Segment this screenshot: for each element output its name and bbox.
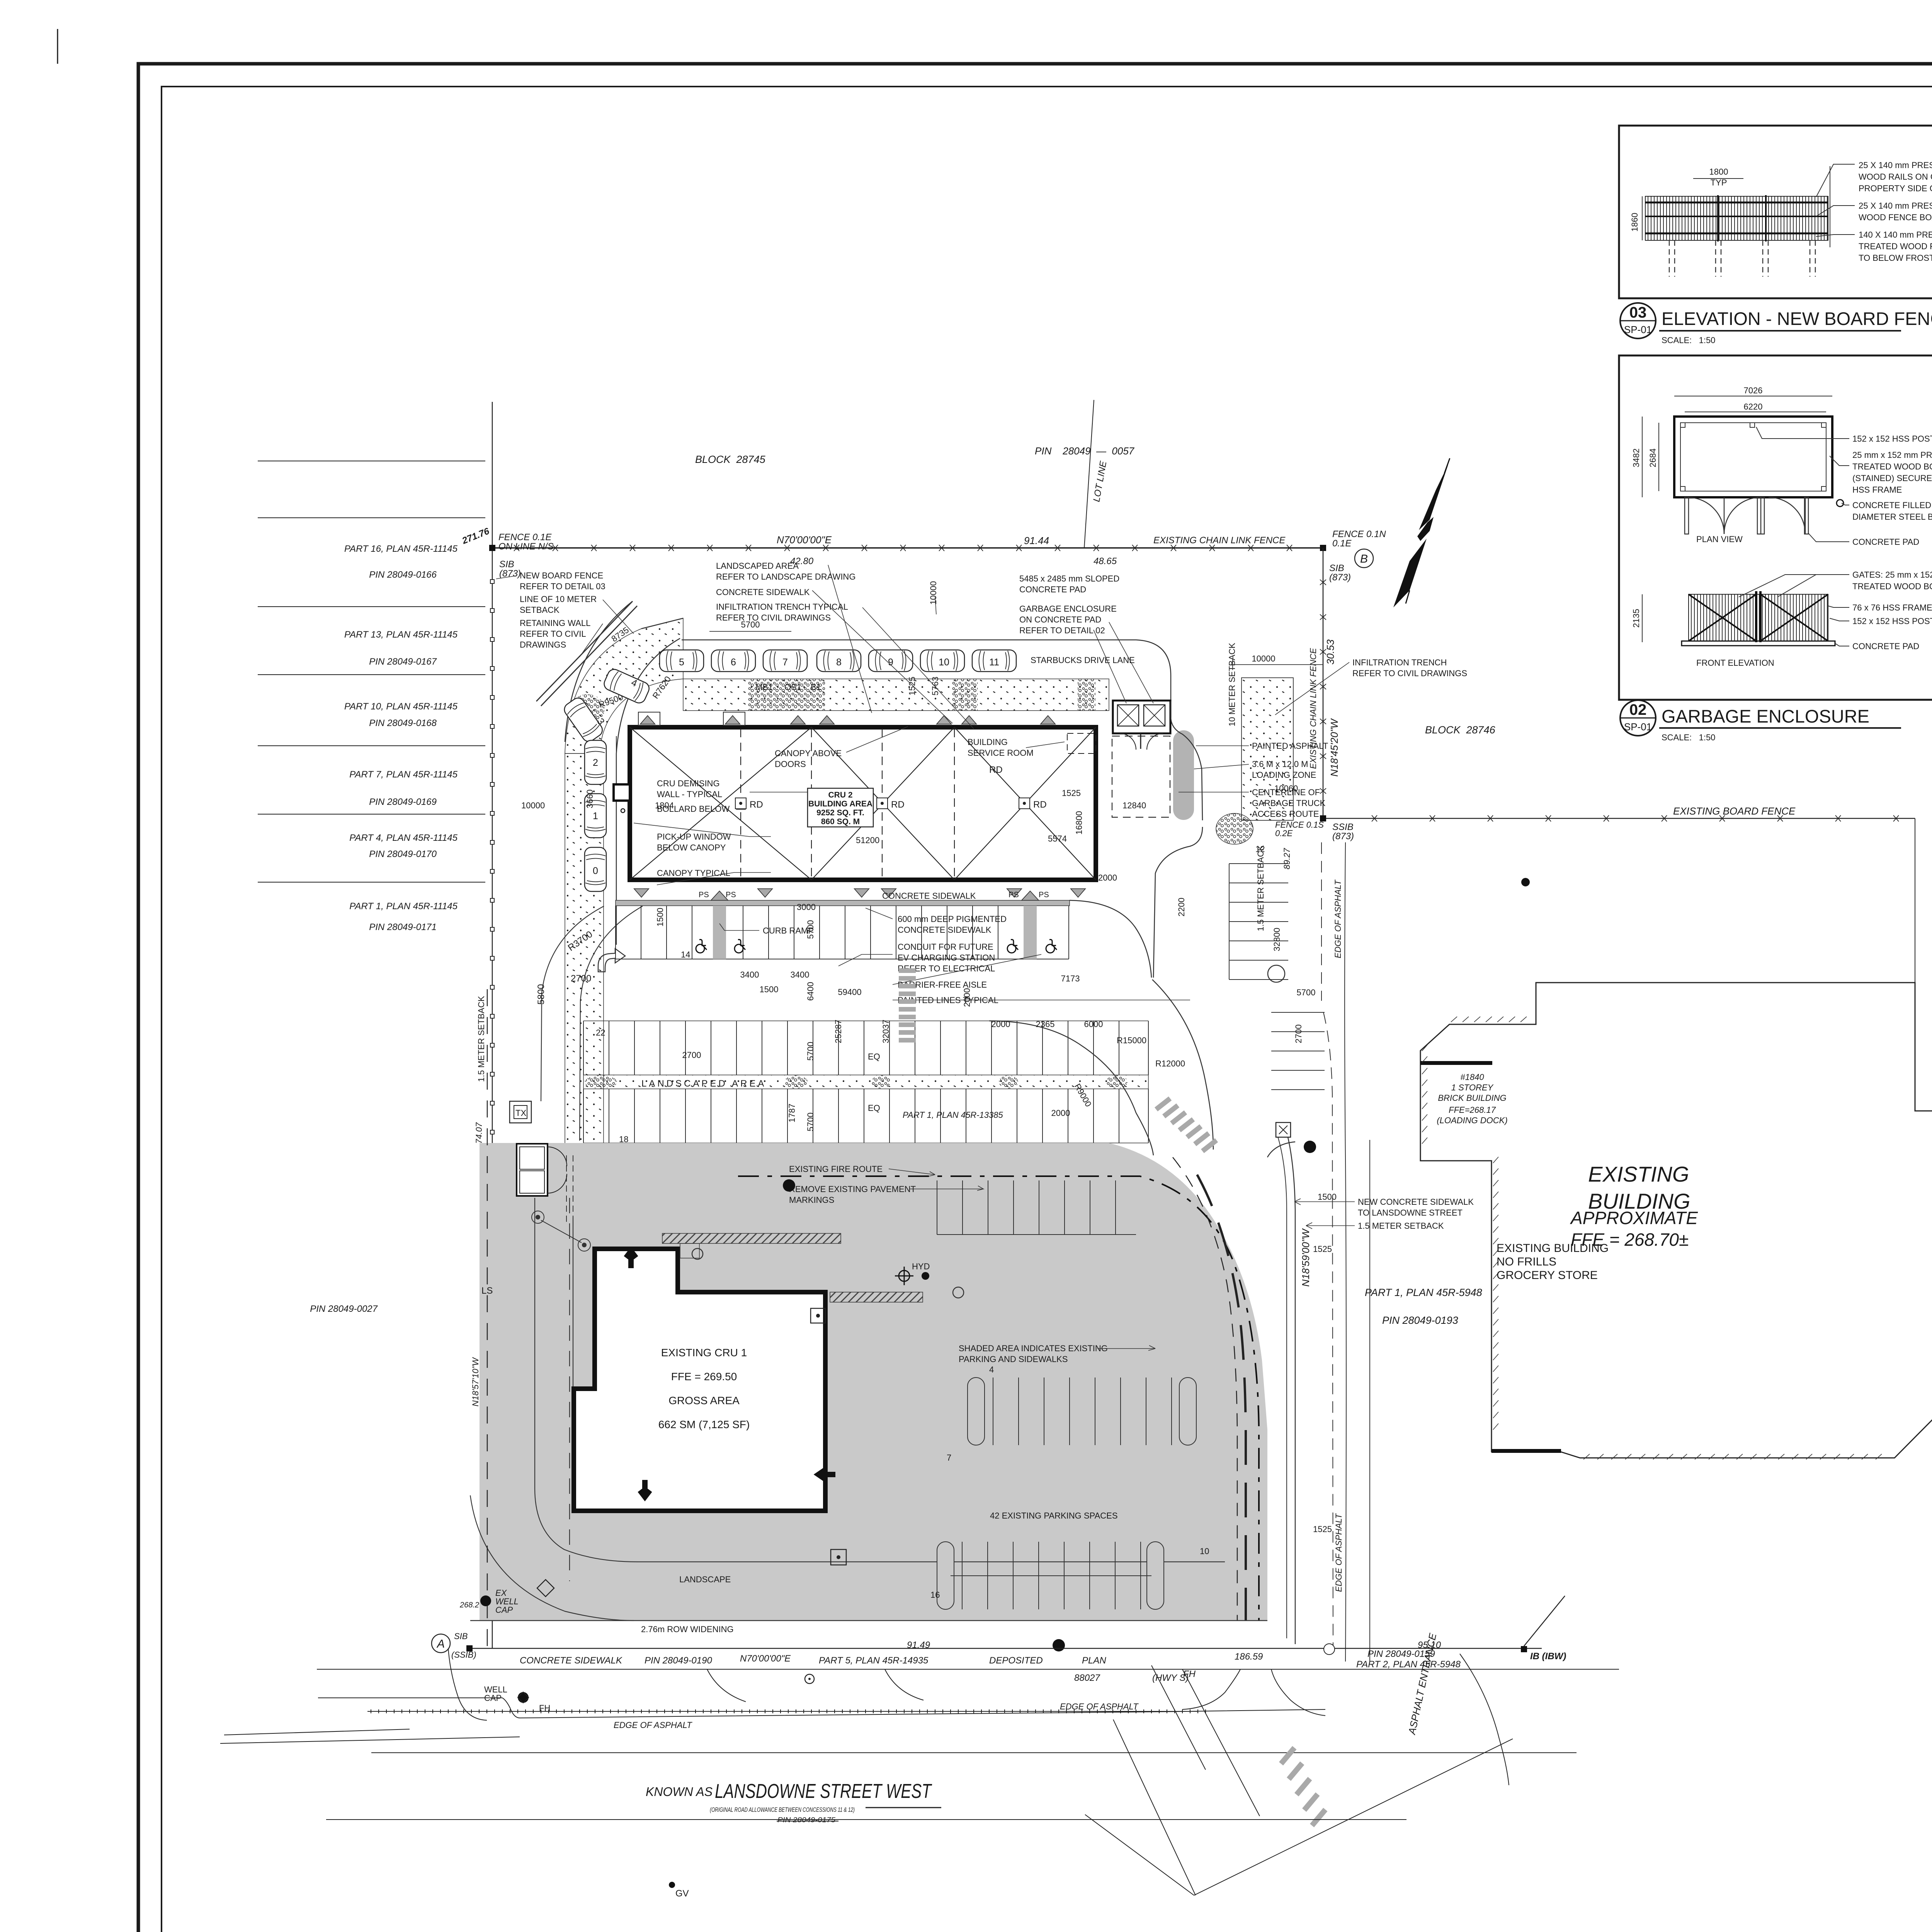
svg-text:268.2: 268.2 [459, 1601, 479, 1609]
svg-text:PARKING AND SIDEWALKS: PARKING AND SIDEWALKS [959, 1354, 1068, 1364]
svg-text:PART 5, PLAN 45R-14935: PART 5, PLAN 45R-14935 [819, 1655, 929, 1666]
svg-text:RD: RD [1033, 799, 1047, 810]
svg-text:02: 02 [1629, 701, 1647, 718]
svg-text:CRU DEMISING: CRU DEMISING [657, 779, 720, 788]
svg-text:2000: 2000 [1051, 1108, 1070, 1118]
svg-text:1525: 1525 [1313, 1244, 1332, 1254]
svg-text:1.5 METER SETBACK: 1.5 METER SETBACK [1256, 845, 1265, 931]
svg-text:N70'00'00"E: N70'00'00"E [777, 534, 832, 546]
svg-text:R15000: R15000 [1117, 1036, 1146, 1045]
svg-text:#1840: #1840 [1460, 1072, 1484, 1082]
svg-text:MARKINGS: MARKINGS [789, 1195, 834, 1205]
svg-text:5: 5 [679, 657, 684, 668]
svg-text:SP-01: SP-01 [1624, 324, 1652, 335]
svg-text:0.2E: 0.2E [1275, 828, 1293, 838]
svg-text:91.49: 91.49 [907, 1640, 930, 1650]
svg-text:EV CHARGING STATION: EV CHARGING STATION [898, 953, 995, 963]
svg-text:PS: PS [1009, 891, 1019, 899]
svg-text:R12000: R12000 [1155, 1059, 1185, 1068]
svg-text:GATES: 25 mm x 152 mm PRESSURE: GATES: 25 mm x 152 mm PRESSURE [1852, 570, 1932, 580]
svg-text:TO BELOW FROST: TO BELOW FROST [1859, 253, 1932, 263]
svg-text:RD: RD [989, 765, 1003, 775]
svg-text:CONCRETE SIDEWALK: CONCRETE SIDEWALK [882, 891, 976, 901]
svg-text:3660: 3660 [585, 789, 595, 808]
svg-text:STARBUCKS DRIVE LANE: STARBUCKS DRIVE LANE [1031, 655, 1135, 665]
svg-text:CONCRETE SIDEWALK: CONCRETE SIDEWALK [520, 1655, 622, 1666]
svg-text:2200: 2200 [1177, 898, 1186, 917]
svg-text:SCALE: 1:50: SCALE: 1:50 [1662, 335, 1715, 345]
svg-text:REFER TO DETAIL 02: REFER TO DETAIL 02 [1019, 626, 1105, 635]
svg-text:88027: 88027 [1074, 1673, 1100, 1683]
svg-text:LANDSCAPE: LANDSCAPE [679, 1575, 731, 1584]
svg-text:76 x 76 HSS FRAME: 76 x 76 HSS FRAME [1852, 603, 1932, 612]
svg-text:(STAINED) SECURED TO 76 x 76: (STAINED) SECURED TO 76 x 76 [1852, 473, 1932, 483]
svg-text:N18'59'00"W: N18'59'00"W [1300, 1228, 1311, 1287]
svg-text:ON LINE N/S: ON LINE N/S [498, 541, 554, 552]
svg-text:2.76m ROW WIDENING: 2.76m ROW WIDENING [641, 1624, 734, 1634]
svg-text:PS: PS [1039, 891, 1049, 899]
svg-text:5700: 5700 [741, 620, 760, 629]
svg-text:CONCRETE PAD: CONCRETE PAD [1852, 641, 1919, 651]
svg-text:REFER TO LANDSCAPE DRAWING: REFER TO LANDSCAPE DRAWING [716, 572, 855, 582]
svg-text:(LOADING DOCK): (LOADING DOCK) [1437, 1116, 1507, 1125]
svg-text:DEPOSITED: DEPOSITED [989, 1655, 1043, 1666]
svg-text:ACCESS ROUTE: ACCESS ROUTE [1252, 809, 1319, 819]
svg-text:7026: 7026 [1744, 386, 1763, 395]
svg-text:REFER TO CIVIL DRAWINGS: REFER TO CIVIL DRAWINGS [1352, 668, 1467, 678]
svg-text:N18'57'10"W: N18'57'10"W [471, 1357, 480, 1406]
svg-text:FENCE 0.1N: FENCE 0.1N [1332, 529, 1386, 539]
svg-text:EXISTING BOARD FENCE: EXISTING BOARD FENCE [1673, 805, 1796, 817]
svg-text:PIN 28049-0167: PIN 28049-0167 [369, 656, 437, 667]
svg-text:GARBAGE ENCLOSURE: GARBAGE ENCLOSURE [1019, 604, 1117, 614]
svg-text:RD: RD [891, 799, 905, 810]
svg-text:EXISTING CHAIN LINK FENCE: EXISTING CHAIN LINK FENCE [1308, 648, 1318, 769]
svg-text:FRONT ELEVATION: FRONT ELEVATION [1696, 658, 1774, 668]
svg-text:FFE = 269.50: FFE = 269.50 [671, 1371, 737, 1383]
svg-text:6000: 6000 [1084, 1019, 1103, 1029]
svg-text:EDGE OF ASPHALT: EDGE OF ASPHALT [1334, 1513, 1344, 1592]
svg-text:SERVICE ROOM: SERVICE ROOM [968, 748, 1034, 758]
svg-text:1787: 1787 [787, 1104, 797, 1122]
svg-text:TO LANSDOWNE STREET: TO LANSDOWNE STREET [1358, 1208, 1463, 1218]
svg-text:BLOCK 28746: BLOCK 28746 [1425, 724, 1496, 736]
svg-text:1525: 1525 [1313, 1524, 1332, 1534]
svg-text:10000: 10000 [1252, 654, 1275, 663]
svg-text:22: 22 [596, 1028, 605, 1037]
svg-text:PART 2, PLAN 45R-5948: PART 2, PLAN 45R-5948 [1356, 1659, 1461, 1670]
svg-text:6220: 6220 [1744, 402, 1763, 412]
svg-text:GV: GV [675, 1888, 689, 1899]
svg-text:CONCRETE SIDEWALK: CONCRETE SIDEWALK [716, 587, 810, 597]
svg-text:12840: 12840 [1122, 801, 1146, 810]
svg-text:INFILTRATION TRENCH: INFILTRATION TRENCH [1352, 658, 1447, 667]
svg-text:PROPERTY SIDE OF FENCE: PROPERTY SIDE OF FENCE [1859, 184, 1932, 193]
svg-text:PIN 28049-0166: PIN 28049-0166 [369, 570, 437, 580]
svg-text:186.59: 186.59 [1235, 1651, 1263, 1662]
svg-text:5485 x 2485 mm SLOPED: 5485 x 2485 mm SLOPED [1019, 574, 1119, 583]
svg-text:BLOCK 28745: BLOCK 28745 [695, 454, 766, 465]
svg-text:25 mm x 152 mm PRESSURE: 25 mm x 152 mm PRESSURE [1852, 450, 1932, 460]
svg-text:7173: 7173 [1061, 974, 1080, 983]
svg-text:LANDSCAPED AREA: LANDSCAPED AREA [716, 561, 799, 571]
svg-text:PART 7, PLAN 45R-11145: PART 7, PLAN 45R-11145 [349, 769, 457, 780]
svg-text:BELOW CANOPY: BELOW CANOPY [657, 843, 726, 852]
svg-text:CONCRETE PAD: CONCRETE PAD [1852, 537, 1919, 547]
svg-text:PART 1, PLAN 45R-13385: PART 1, PLAN 45R-13385 [903, 1110, 1003, 1120]
svg-text:DRAWINGS: DRAWINGS [520, 640, 566, 650]
svg-text:1500: 1500 [760, 985, 779, 994]
svg-text:GROCERY STORE: GROCERY STORE [1497, 1269, 1598, 1282]
svg-text:WALL - TYPICAL: WALL - TYPICAL [657, 789, 722, 799]
svg-text:SETBACK: SETBACK [520, 605, 560, 615]
svg-text:PIN 28049-0193: PIN 28049-0193 [1382, 1315, 1458, 1326]
svg-text:10060: 10060 [1274, 784, 1298, 793]
svg-text:ELEVATION - NEW BOARD FENCE: ELEVATION - NEW BOARD FENCE [1662, 308, 1932, 329]
svg-text:(SSIB): (SSIB) [451, 1650, 476, 1660]
svg-text:4: 4 [989, 1365, 994, 1374]
svg-text:25287: 25287 [833, 1020, 843, 1043]
svg-text:APPROXIMATE: APPROXIMATE [1570, 1208, 1698, 1228]
svg-text:NO FRILLS: NO FRILLS [1497, 1255, 1556, 1268]
svg-text:0: 0 [593, 866, 598, 876]
svg-text:(873): (873) [1332, 831, 1354, 842]
svg-text:TREATED WOOD FENCE POSTS: TREATED WOOD FENCE POSTS [1859, 241, 1932, 251]
svg-text:GARBAGE ENCLOSURE: GARBAGE ENCLOSURE [1662, 706, 1869, 726]
svg-text:140 X 140 mm PRESSURE: 140 X 140 mm PRESSURE [1859, 230, 1932, 240]
svg-text:FFE=268.17: FFE=268.17 [1449, 1105, 1496, 1115]
svg-text:1860: 1860 [1630, 213, 1639, 232]
svg-text:48.65: 48.65 [1094, 556, 1117, 566]
svg-text:SIB: SIB [454, 1631, 468, 1641]
svg-text:BRICK BUILDING: BRICK BUILDING [1438, 1093, 1506, 1103]
svg-text:152 x 152 HSS POST TYPICAL: 152 x 152 HSS POST TYPICAL [1852, 434, 1932, 444]
svg-text:PIN 28049-0170: PIN 28049-0170 [369, 849, 437, 859]
svg-text:91.44: 91.44 [1024, 535, 1049, 546]
svg-text:18: 18 [619, 1134, 628, 1144]
svg-text:1500: 1500 [655, 908, 665, 927]
svg-text:25 X 140 mm PRESSURE TREATED: 25 X 140 mm PRESSURE TREATED [1859, 160, 1932, 170]
svg-text:74.07: 74.07 [474, 1122, 484, 1144]
svg-text:REFER TO CIVIL DRAWINGS: REFER TO CIVIL DRAWINGS [716, 613, 831, 622]
svg-text:LS: LS [481, 1286, 493, 1296]
svg-text:3.6 M x 12.0 M: 3.6 M x 12.0 M [1252, 759, 1308, 769]
svg-text:HSS FRAME: HSS FRAME [1852, 485, 1902, 495]
svg-text:EQ: EQ [868, 1052, 880, 1061]
svg-text:3400: 3400 [791, 970, 810, 980]
svg-text:EDGE OF ASPHALT: EDGE OF ASPHALT [1060, 1702, 1139, 1711]
svg-text:7: 7 [782, 657, 788, 668]
svg-text:PART 1, PLAN 45R-5948: PART 1, PLAN 45R-5948 [1365, 1287, 1482, 1298]
svg-text:DOORS: DOORS [775, 759, 806, 769]
svg-text:REMOVE EXISTING PAVEMENT: REMOVE EXISTING PAVEMENT [789, 1184, 916, 1194]
svg-text:51200: 51200 [856, 835, 879, 845]
svg-text:9252 SQ. FT.: 9252 SQ. FT. [816, 808, 864, 817]
svg-text:2700: 2700 [571, 973, 591, 984]
svg-text:(873): (873) [499, 568, 521, 579]
svg-text:REFER TO CIVIL: REFER TO CIVIL [520, 629, 586, 639]
svg-text:DIAMETER STEEL BOLLARD: DIAMETER STEEL BOLLARD [1852, 512, 1932, 522]
svg-text:10: 10 [1200, 1546, 1209, 1556]
svg-text:2135: 2135 [1631, 609, 1641, 628]
svg-text:2000: 2000 [962, 988, 972, 1007]
svg-text:GROSS AREA: GROSS AREA [668, 1395, 740, 1406]
svg-text:9: 9 [888, 657, 893, 668]
svg-text:03: 03 [1629, 304, 1647, 321]
svg-text:2700: 2700 [682, 1050, 701, 1060]
svg-text:2365: 2365 [1036, 1019, 1055, 1029]
svg-text:N70'00'00"E: N70'00'00"E [740, 1653, 791, 1664]
svg-text:SIB: SIB [499, 559, 514, 570]
svg-text:CANOPY ABOVE: CANOPY ABOVE [775, 748, 842, 758]
svg-text:CURB RAMP: CURB RAMP [763, 926, 814, 935]
svg-text:SP-01: SP-01 [1624, 721, 1652, 733]
svg-text:PAINTED ASPHALT: PAINTED ASPHALT [1252, 741, 1328, 751]
svg-text:LINE OF 10 METER: LINE OF 10 METER [520, 594, 597, 604]
svg-text:PIN 28049-0027: PIN 28049-0027 [310, 1304, 378, 1314]
svg-text:5800: 5800 [536, 984, 546, 1005]
svg-text:PS: PS [699, 891, 709, 899]
svg-text:7: 7 [947, 1453, 951, 1463]
svg-text:RD: RD [750, 799, 763, 810]
svg-text:SSIB: SSIB [1332, 822, 1354, 832]
svg-text:PIN 28049-0190: PIN 28049-0190 [645, 1655, 712, 1666]
svg-text:BUILDING: BUILDING [968, 737, 1008, 747]
svg-text:30.53: 30.53 [1325, 639, 1336, 665]
svg-text:2684: 2684 [1648, 449, 1658, 468]
svg-text:32037: 32037 [881, 1020, 891, 1043]
svg-text:TREATED WOOD BOARDS: TREATED WOOD BOARDS [1852, 462, 1932, 471]
svg-text:16: 16 [930, 1590, 940, 1600]
svg-text:PIN 28049 — 0057: PIN 28049 — 0057 [1035, 445, 1135, 457]
svg-text:PS: PS [726, 891, 736, 899]
svg-text:EXISTING FIRE ROUTE: EXISTING FIRE ROUTE [789, 1164, 883, 1174]
svg-text:LOADING ZONE: LOADING ZONE [1252, 770, 1316, 780]
svg-text:(ORIGINAL ROAD ALLOWANCE BETWE: (ORIGINAL ROAD ALLOWANCE BETWEEN CONCESS… [710, 1806, 855, 1813]
svg-text:EQ: EQ [868, 1103, 880, 1113]
svg-text:5700: 5700 [1297, 988, 1316, 997]
svg-text:ON CONCRETE PAD: ON CONCRETE PAD [1019, 615, 1101, 624]
svg-text:1800: 1800 [1709, 167, 1728, 177]
svg-text:NEW BOARD FENCE: NEW BOARD FENCE [520, 571, 603, 580]
svg-text:2700: 2700 [1294, 1024, 1303, 1043]
svg-text:42 EXISTING PARKING SPACES: 42 EXISTING PARKING SPACES [990, 1511, 1118, 1520]
svg-text:EXISTING CRU 1: EXISTING CRU 1 [661, 1347, 747, 1359]
svg-text:1.5 METER SETBACK: 1.5 METER SETBACK [1358, 1221, 1444, 1231]
svg-text:FENCE 0.1E: FENCE 0.1E [498, 532, 552, 543]
svg-text:BUILDING AREA: BUILDING AREA [808, 799, 872, 808]
svg-text:860 SQ. M: 860 SQ. M [821, 817, 860, 826]
svg-text:INFILTRATION TRENCH TYPICAL: INFILTRATION TRENCH TYPICAL [716, 602, 848, 612]
svg-text:CONCRETE FILLED 152 mm: CONCRETE FILLED 152 mm [1852, 500, 1932, 510]
svg-text:PART 16, PLAN 45R-11145: PART 16, PLAN 45R-11145 [344, 544, 458, 554]
svg-text:10000: 10000 [929, 581, 938, 605]
svg-text:SIB: SIB [1329, 563, 1344, 573]
svg-text:IB (IBW): IB (IBW) [1530, 1651, 1566, 1662]
svg-text:0.1E: 0.1E [1332, 538, 1352, 549]
svg-text:CANOPY TYPICAL: CANOPY TYPICAL [657, 868, 730, 878]
svg-text:10 METER SETBACK: 10 METER SETBACK [1227, 643, 1237, 726]
svg-text:B: B [1360, 553, 1368, 565]
svg-text:PIN 28049-0169: PIN 28049-0169 [369, 797, 437, 807]
svg-text:WOOD RAILS ON COMMERCIAL: WOOD RAILS ON COMMERCIAL [1859, 172, 1932, 182]
svg-text:TREATED WOOD BOARDS (STAINED): TREATED WOOD BOARDS (STAINED) [1852, 582, 1932, 591]
svg-text:152 x 152 HSS POST TYPICAL: 152 x 152 HSS POST TYPICAL [1852, 616, 1932, 626]
svg-text:TX: TX [515, 1108, 526, 1118]
svg-text:600 mm DEEP PIGMENTED: 600 mm DEEP PIGMENTED [898, 914, 1007, 924]
svg-text:32800: 32800 [1272, 928, 1282, 951]
svg-text:LANDSCAPED AREA: LANDSCAPED AREA [641, 1078, 766, 1089]
svg-text:EXISTING BUILDING: EXISTING BUILDING [1497, 1242, 1609, 1255]
svg-text:1804: 1804 [655, 801, 674, 810]
svg-text:14: 14 [681, 950, 690, 959]
svg-text:11: 11 [989, 657, 999, 668]
svg-text:5700: 5700 [806, 1042, 815, 1061]
svg-text:KNOWN AS: KNOWN AS [646, 1785, 713, 1799]
svg-text:PIN 28049-0171: PIN 28049-0171 [369, 922, 437, 932]
svg-text:EXISTING: EXISTING [1588, 1162, 1689, 1186]
svg-text:PLAN VIEW: PLAN VIEW [1696, 534, 1743, 544]
svg-text:RETAINING WALL: RETAINING WALL [520, 618, 590, 628]
svg-text:1525: 1525 [1062, 788, 1081, 798]
svg-text:SCALE: 1:50: SCALE: 1:50 [1662, 733, 1715, 742]
svg-text:CONCRETE PAD: CONCRETE PAD [1019, 585, 1086, 594]
svg-text:3000: 3000 [797, 902, 816, 912]
svg-text:662 SM (7,125 SF): 662 SM (7,125 SF) [658, 1418, 750, 1430]
svg-text:EXISTING CHAIN LINK FENCE: EXISTING CHAIN LINK FENCE [1153, 535, 1286, 546]
svg-text:EDGE OF ASPHALT: EDGE OF ASPHALT [1333, 879, 1343, 958]
svg-text:WOOD FENCE BOARDS: WOOD FENCE BOARDS [1859, 213, 1932, 222]
svg-text:1 STOREY: 1 STOREY [1451, 1083, 1494, 1092]
svg-text:A: A [436, 1638, 445, 1650]
svg-text:(873): (873) [1329, 572, 1351, 583]
svg-text:1: 1 [593, 811, 598, 821]
svg-text:8: 8 [836, 657, 842, 668]
svg-text:SHADED AREA INDICATES EXISTING: SHADED AREA INDICATES EXISTING [959, 1344, 1108, 1353]
svg-text:2: 2 [593, 757, 598, 768]
svg-text:10: 10 [939, 657, 949, 668]
svg-text:16800: 16800 [1074, 811, 1084, 835]
svg-text:10000: 10000 [521, 801, 545, 810]
svg-text:NEW CONCRETE SIDEWALK: NEW CONCRETE SIDEWALK [1358, 1197, 1474, 1207]
svg-text:PART 13, PLAN 45R-11145: PART 13, PLAN 45R-11145 [344, 629, 458, 640]
svg-text:25 X 140 mm PRESSURE TREATED: 25 X 140 mm PRESSURE TREATED [1859, 201, 1932, 211]
svg-text:EDGE OF ASPHALT: EDGE OF ASPHALT [614, 1720, 692, 1730]
svg-text:5700: 5700 [806, 1112, 815, 1131]
svg-text:1500: 1500 [1318, 1192, 1337, 1202]
svg-text:CONDUIT FOR FUTURE: CONDUIT FOR FUTURE [898, 942, 993, 952]
svg-text:CONCRETE SIDEWALK: CONCRETE SIDEWALK [898, 925, 992, 935]
svg-text:CAP: CAP [495, 1605, 513, 1615]
svg-text:TYP: TYP [1711, 178, 1727, 187]
svg-text:CRU 2: CRU 2 [828, 791, 852, 799]
svg-text:GARBAGE TRUCK: GARBAGE TRUCK [1252, 798, 1326, 808]
svg-text:89.27: 89.27 [1282, 848, 1292, 869]
svg-text:3482: 3482 [1631, 449, 1641, 468]
svg-text:3400: 3400 [740, 970, 759, 980]
svg-text:REFER TO DETAIL 03: REFER TO DETAIL 03 [520, 582, 605, 591]
svg-text:PART 10, PLAN 45R-11145: PART 10, PLAN 45R-11145 [344, 701, 458, 712]
svg-text:PART 4, PLAN 45R-11145: PART 4, PLAN 45R-11145 [349, 833, 457, 843]
svg-text:PIN 28049-0168: PIN 28049-0168 [369, 718, 437, 728]
svg-text:N18'45'20"W: N18'45'20"W [1328, 718, 1340, 777]
svg-text:LANSDOWNE STREET WEST: LANSDOWNE STREET WEST [715, 1780, 932, 1803]
svg-text:1.5 METER SETBACK: 1.5 METER SETBACK [476, 996, 486, 1082]
svg-text:6400: 6400 [806, 982, 815, 1001]
svg-text:PART 1, PLAN 45R-11145: PART 1, PLAN 45R-11145 [349, 901, 457, 912]
svg-text:59400: 59400 [838, 987, 861, 997]
svg-text:6: 6 [731, 657, 736, 668]
svg-text:PLAN: PLAN [1082, 1655, 1106, 1666]
svg-text:5574: 5574 [1048, 834, 1067, 844]
svg-text:2000: 2000 [1098, 873, 1117, 883]
svg-text:HYD: HYD [912, 1262, 930, 1271]
